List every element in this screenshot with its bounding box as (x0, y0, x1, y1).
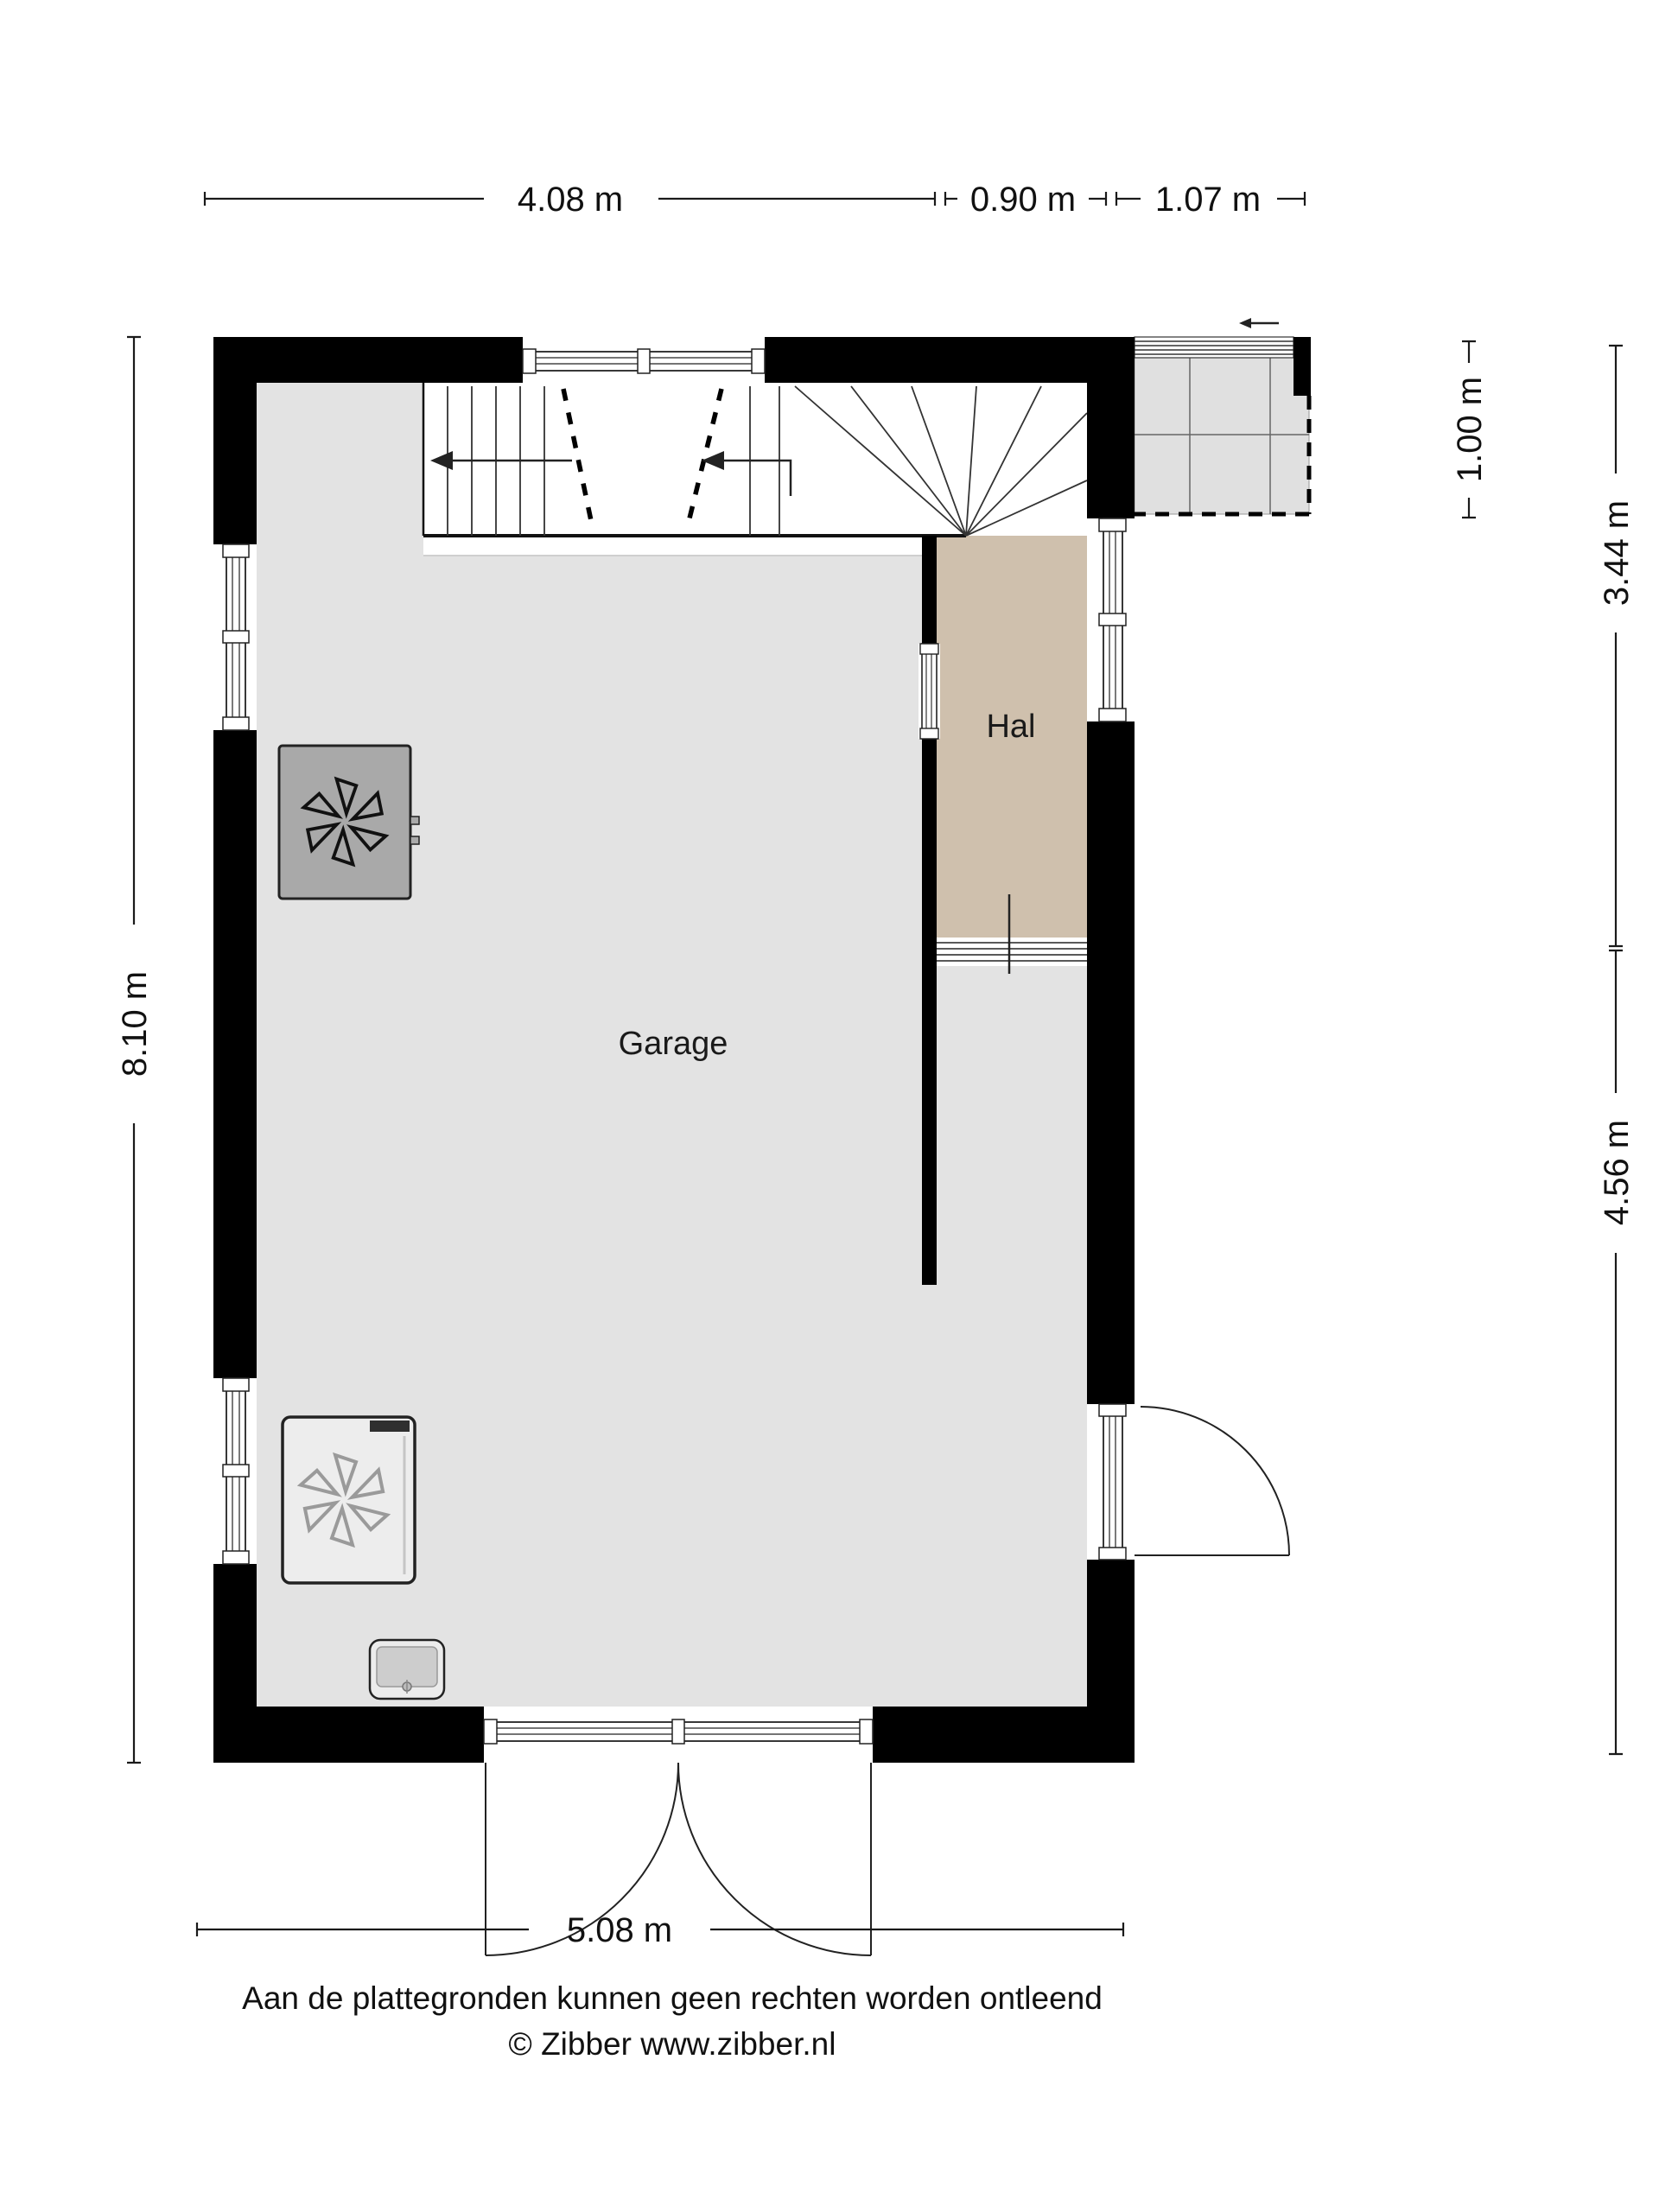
garage-door (484, 1707, 873, 1955)
footer-disclaimer: Aan de plattegronden kunnen geen rechten… (242, 1980, 1103, 2016)
sink-icon (370, 1640, 444, 1699)
window-top (523, 337, 765, 383)
stair-area (423, 383, 1087, 536)
wall-partition-top (922, 536, 937, 644)
stair-landing (423, 536, 922, 556)
window-partition (918, 644, 940, 739)
dim-label-top-right: 1.07 m (1155, 181, 1261, 219)
dimension-right-mid: 3.44 m (1598, 346, 1636, 946)
dimension-top: 4.08 m 0.90 m 1.07 m (205, 181, 1305, 219)
porch-area (1135, 318, 1311, 514)
door-right-swing-arc (1141, 1407, 1289, 1555)
window-right (1087, 518, 1135, 721)
dimension-right-bottom: 4.56 m (1598, 950, 1636, 1754)
wall-left-2 (213, 730, 257, 1378)
floor-plan-canvas: Garage Hal 4.08 m 0.90 m 1.07 m 8.10 m 1… (0, 0, 1659, 2212)
floor-plan-page: Garage Hal 4.08 m 0.90 m 1.07 m 8.10 m 1… (0, 0, 1659, 2212)
wall-bottom-right (873, 1707, 1135, 1763)
wall-right-1 (1087, 337, 1135, 518)
footer-copyright: © Zibber www.zibber.nl (509, 2026, 836, 2062)
dim-label-left: 8.10 m (116, 971, 154, 1077)
wall-top-right (765, 337, 1135, 383)
wall-bottom-left (213, 1707, 484, 1763)
window-left-lower (213, 1378, 257, 1564)
wall-partition-bottom (922, 739, 937, 1285)
heater-unit (279, 746, 419, 899)
door-right (1087, 1404, 1289, 1560)
room-label-garage: Garage (619, 1026, 728, 1062)
dim-label-top-mid: 0.90 m (970, 181, 1076, 219)
wall-top-left (213, 337, 523, 383)
garage-door-arc-right (678, 1763, 871, 1955)
ventilation-unit (283, 1417, 415, 1583)
dim-label-bottom: 5.08 m (567, 1911, 672, 1949)
dim-label-right-mid: 3.44 m (1598, 500, 1636, 606)
dim-label-right-top: 1.00 m (1451, 377, 1489, 482)
hal-threshold (937, 938, 1087, 966)
wall-right-2 (1087, 721, 1135, 1404)
dim-label-top-main: 4.08 m (518, 181, 623, 219)
dimension-bottom: 5.08 m (197, 1911, 1123, 1949)
dimension-left: 8.10 m (116, 337, 154, 1763)
room-label-hal: Hal (986, 709, 1035, 745)
window-left-upper (213, 544, 257, 730)
porch-wall-stub (1294, 337, 1311, 396)
dim-label-right-bottom: 4.56 m (1598, 1120, 1636, 1225)
dimension-right-top: 1.00 m (1451, 341, 1489, 518)
wall-left-1 (213, 337, 257, 544)
arrow-left-icon (1239, 318, 1279, 328)
